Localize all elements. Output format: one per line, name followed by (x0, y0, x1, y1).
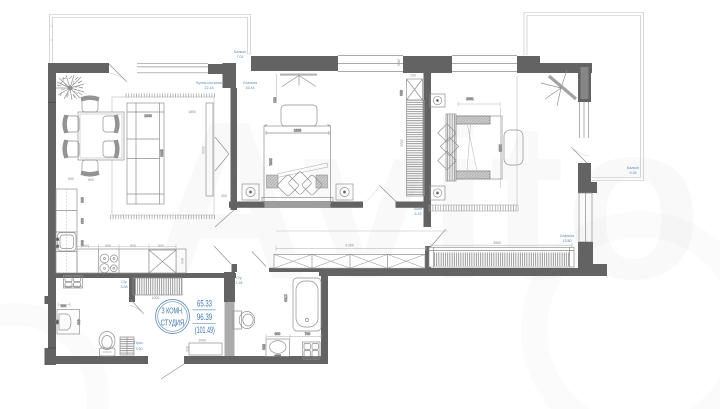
svg-text:СТУДИЯ: СТУДИЯ (161, 318, 185, 328)
svg-text:1829: 1829 (498, 144, 502, 152)
svg-text:Балкон: Балкон (627, 166, 639, 170)
svg-text:2400: 2400 (397, 59, 401, 67)
svg-text:2960: 2960 (160, 149, 164, 157)
svg-text:22.18: 22.18 (205, 86, 214, 90)
svg-text:700: 700 (305, 332, 311, 336)
svg-text:Прих.: Прих. (134, 341, 143, 345)
svg-text:400: 400 (77, 319, 81, 325)
svg-text:(101.49): (101.49) (195, 325, 215, 335)
svg-text:3.50: 3.50 (136, 347, 143, 351)
svg-text:Холл: Холл (414, 207, 422, 211)
svg-text:3.08: 3.08 (121, 285, 128, 289)
svg-text:3950: 3950 (493, 241, 501, 245)
svg-text:7.01: 7.01 (237, 55, 244, 59)
svg-text:1829: 1829 (294, 129, 302, 133)
svg-text:1850: 1850 (188, 110, 196, 114)
svg-text:13.80: 13.80 (563, 239, 572, 243)
svg-text:500: 500 (399, 90, 403, 96)
svg-text:800: 800 (130, 244, 136, 248)
svg-text:1700: 1700 (284, 294, 288, 302)
svg-text:400: 400 (221, 194, 227, 198)
svg-text:2081: 2081 (269, 158, 273, 166)
svg-text:600: 600 (80, 197, 84, 203)
svg-text:2081: 2081 (466, 97, 474, 101)
svg-text:600: 600 (158, 244, 164, 248)
svg-text:800: 800 (88, 178, 94, 182)
svg-text:16.44: 16.44 (246, 86, 255, 90)
svg-text:600: 600 (105, 244, 111, 248)
svg-text:1640: 1640 (144, 114, 152, 118)
svg-text:2000: 2000 (201, 146, 205, 154)
svg-text:1.94: 1.94 (236, 281, 243, 285)
svg-text:260: 260 (410, 74, 416, 78)
svg-text:С/у: С/у (121, 280, 127, 284)
svg-text:С/у: С/у (236, 276, 242, 280)
svg-text:Кухня-гостиная: Кухня-гостиная (196, 81, 221, 85)
svg-text:500: 500 (262, 344, 266, 350)
svg-text:600: 600 (80, 218, 84, 224)
svg-text:65.33: 65.33 (197, 298, 212, 308)
svg-text:9.26: 9.26 (630, 171, 637, 175)
svg-text:3 КОМН.: 3 КОМН. (162, 306, 184, 316)
svg-text:4.200: 4.200 (345, 243, 354, 247)
svg-text:600: 600 (275, 332, 281, 336)
svg-text:1000: 1000 (152, 296, 160, 300)
svg-text:600: 600 (68, 177, 74, 181)
svg-text:2920: 2920 (400, 139, 404, 147)
svg-text:Спальня: Спальня (243, 81, 257, 85)
svg-text:(600): (600) (81, 244, 89, 248)
svg-text:Балкон: Балкон (234, 50, 246, 54)
svg-text:600: 600 (180, 258, 184, 264)
svg-text:600: 600 (273, 97, 277, 103)
svg-text:Спальня: Спальня (560, 234, 574, 238)
svg-text:1000: 1000 (198, 339, 206, 343)
svg-text:96.39: 96.39 (197, 312, 213, 322)
svg-text:5.15: 5.15 (415, 212, 422, 216)
svg-text:900: 900 (185, 346, 189, 352)
